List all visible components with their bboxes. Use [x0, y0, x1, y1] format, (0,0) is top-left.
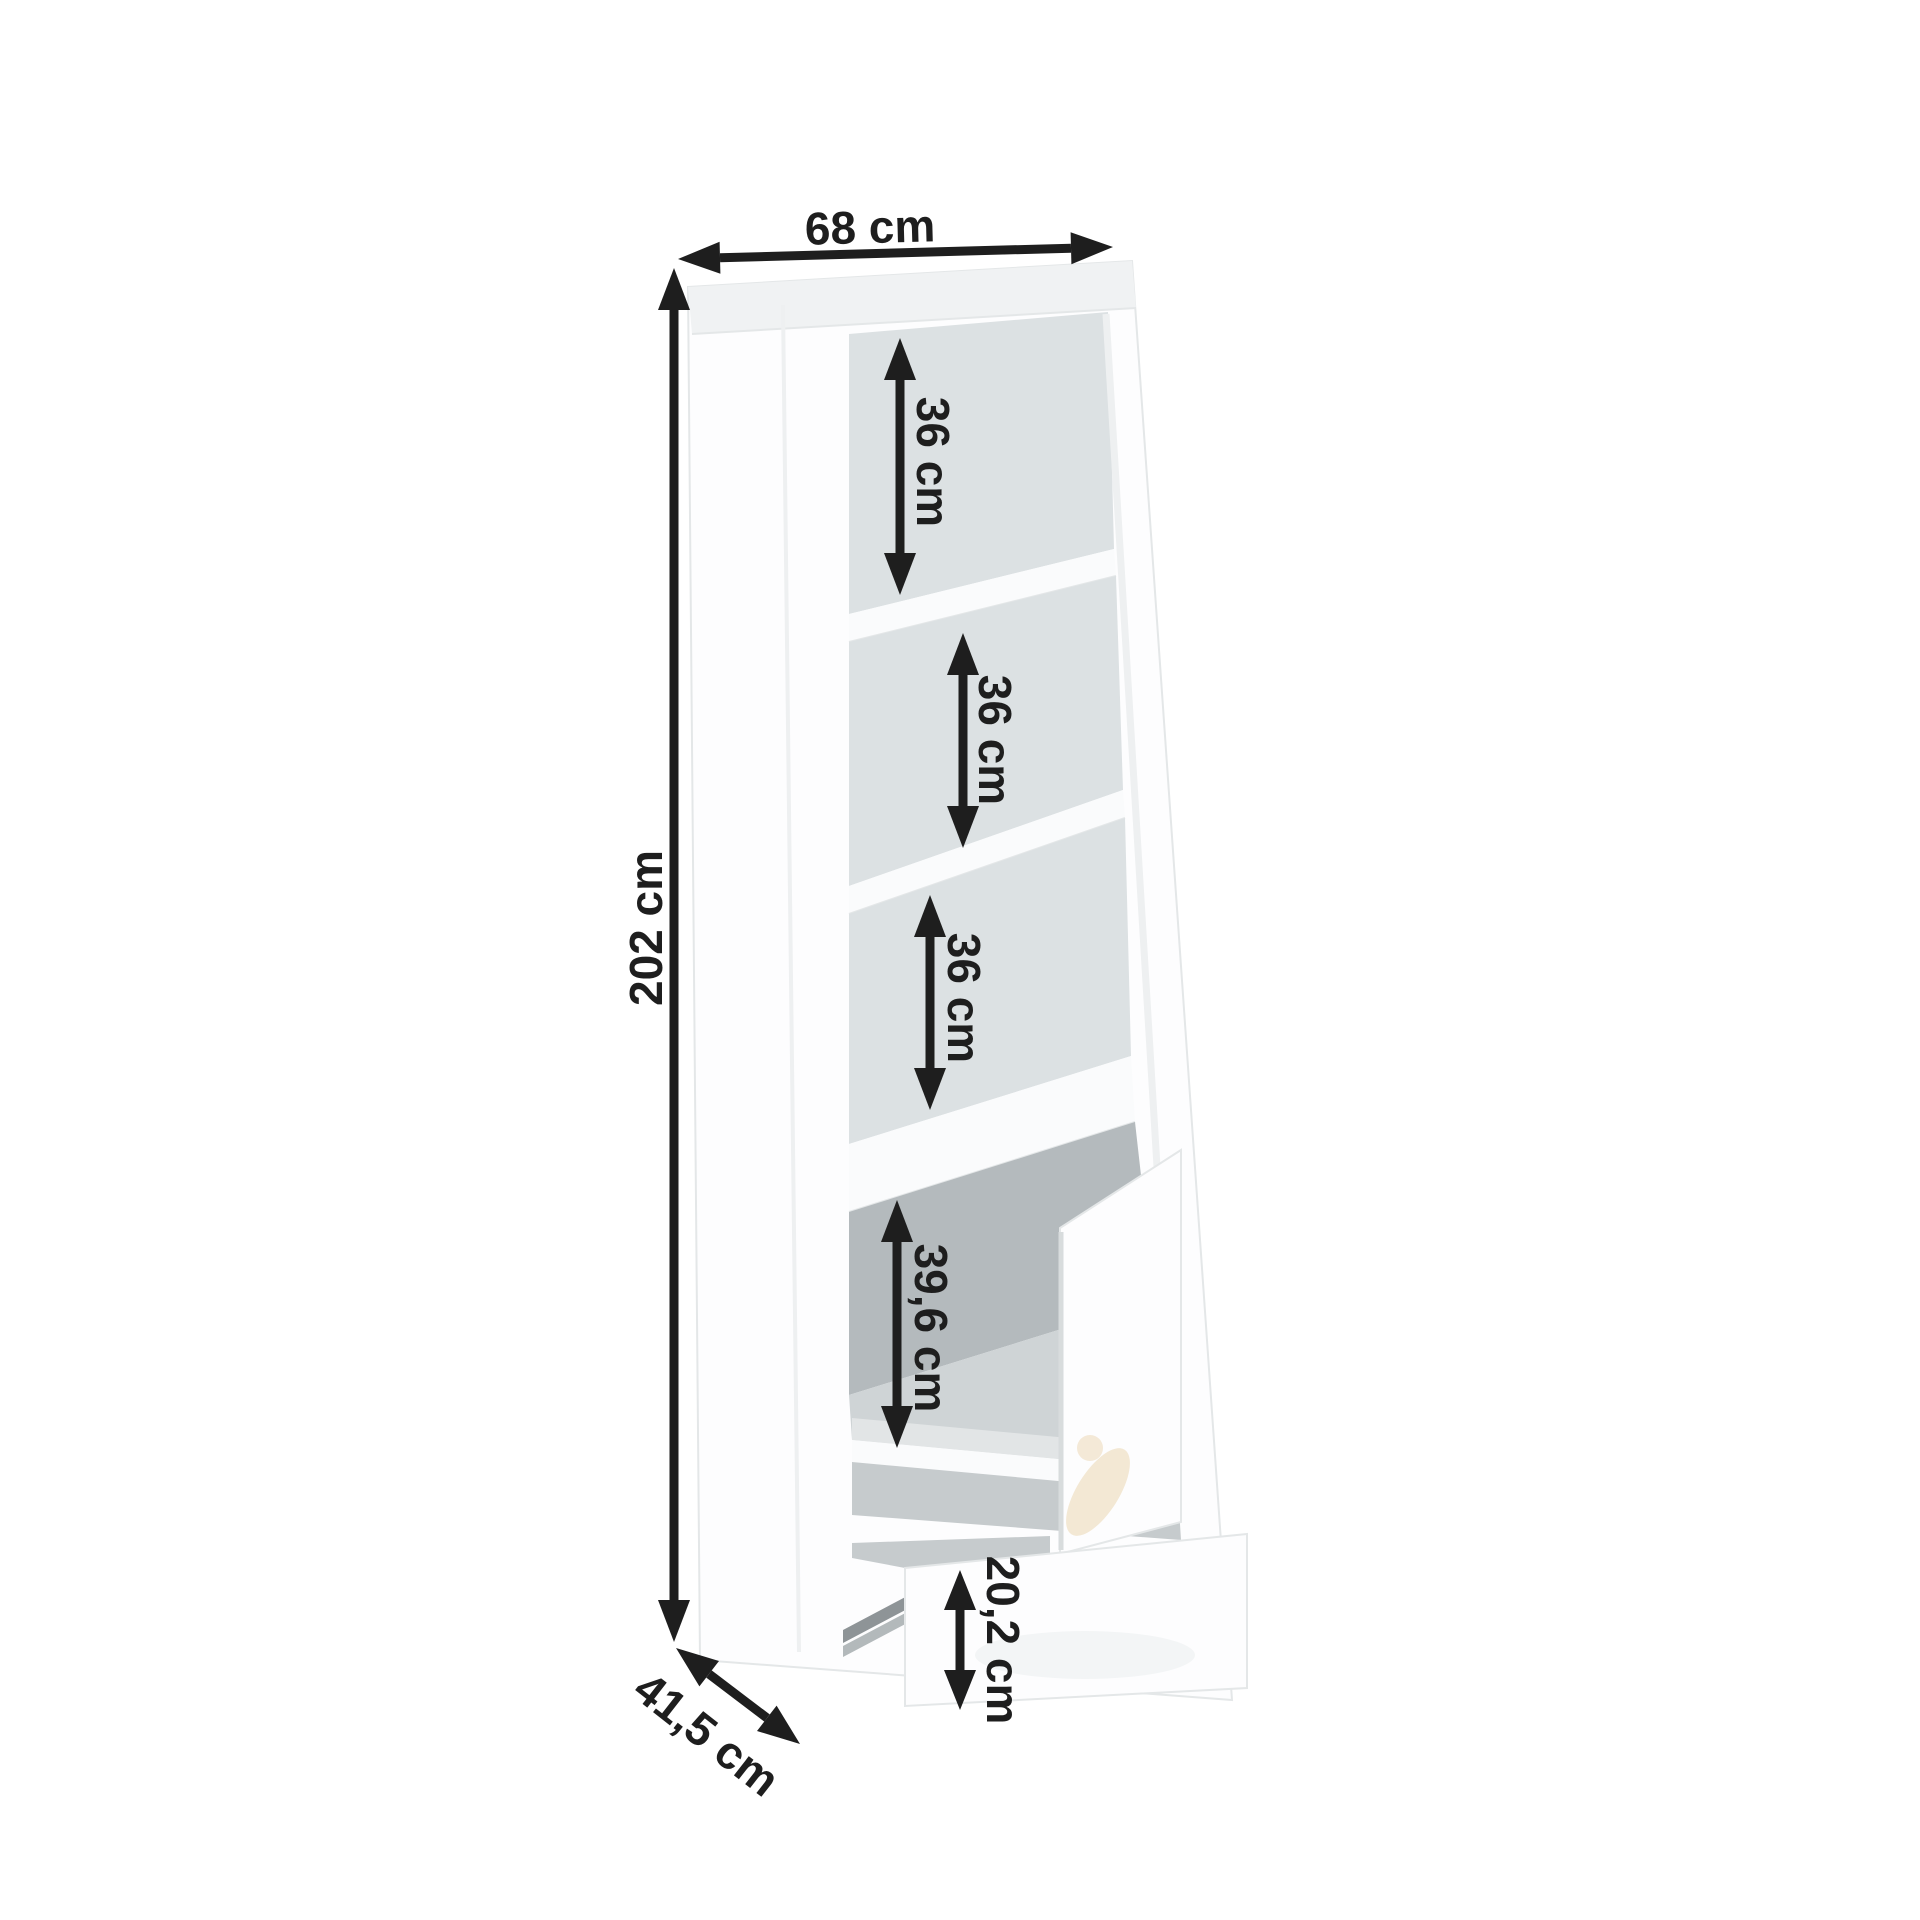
- depth-dimension: 41,5 cm: [624, 1648, 800, 1806]
- height-dimension: 202 cm: [620, 268, 690, 1642]
- width-dimension: 68 cm: [678, 199, 1113, 273]
- door-handle-reflection: [1077, 1435, 1103, 1461]
- shelf-1-label: 36 cm: [907, 397, 959, 527]
- width-label: 68 cm: [804, 199, 936, 254]
- door-compartment-label: 39,6 cm: [905, 1244, 957, 1413]
- shelf-2-label: 36 cm: [969, 675, 1021, 805]
- depth-label: 41,5 cm: [624, 1662, 789, 1807]
- drawer-label: 20,2 cm: [977, 1556, 1029, 1725]
- height-label: 202 cm: [620, 850, 672, 1006]
- diagram-canvas: 68 cm 202 cm 41,5 cm 36 cm 3: [0, 0, 1920, 1920]
- width-arrowhead-left: [678, 242, 720, 274]
- drawer: [843, 1534, 1247, 1706]
- shelf-3-label: 36 cm: [938, 933, 990, 1063]
- width-arrowhead-right: [1071, 232, 1113, 264]
- drawer-dimension: 20,2 cm: [944, 1556, 1029, 1725]
- height-arrowhead-bottom: [658, 1600, 690, 1642]
- height-arrowhead-top: [658, 268, 690, 310]
- furniture-dimension-diagram: 68 cm 202 cm 41,5 cm 36 cm 3: [0, 0, 1920, 1920]
